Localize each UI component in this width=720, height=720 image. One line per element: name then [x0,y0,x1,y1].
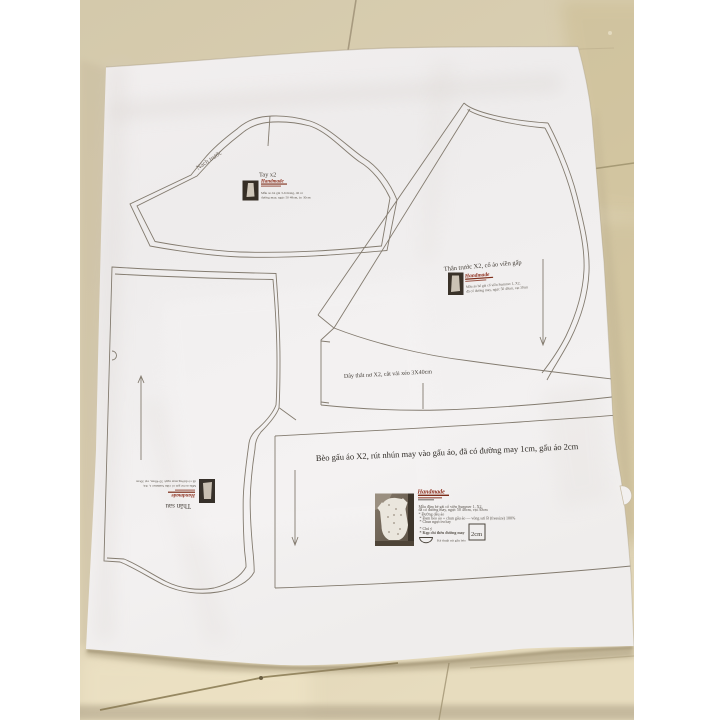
svg-text:Tay x2: Tay x2 [259,172,276,179]
svg-text:Thân sau: Thân sau [165,502,191,510]
svg-text:Kỹ thuật rút gấu bèo: Kỹ thuật rút gấu bèo [437,539,466,543]
svg-text:* Chun ngực/eo/tay: * Chun ngực/eo/tay [420,519,452,524]
svg-text:Handmade: Handmade [171,492,196,498]
svg-text:2cm: 2cm [471,531,482,538]
svg-text:* Kẹp chỉ thêu đường may: * Kẹp chỉ thêu đường may [420,530,465,535]
